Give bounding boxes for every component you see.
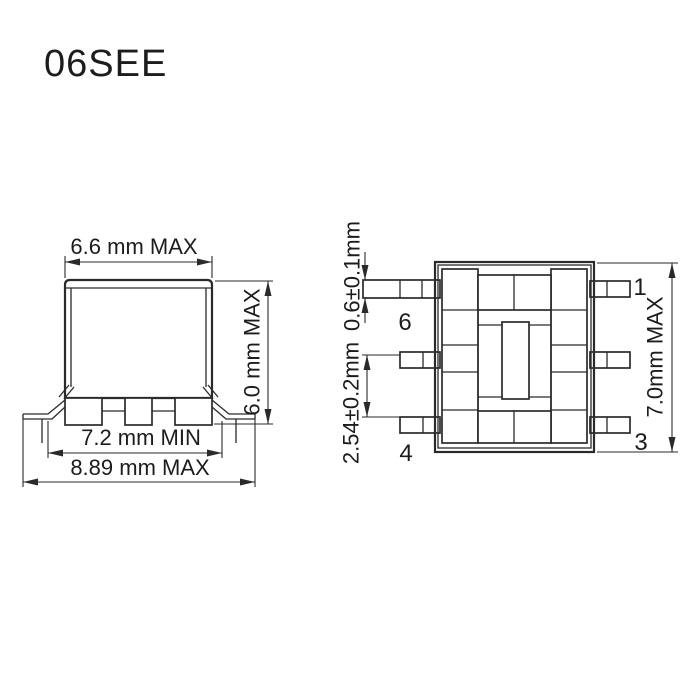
terminal-column-left <box>442 269 478 443</box>
technical-drawing: 06SEE <box>0 0 700 700</box>
pin-label-3: 3 <box>634 429 647 456</box>
contact-block-top <box>478 275 551 310</box>
drawing-sheet: 06SEE <box>0 0 700 700</box>
dim-label-lead-width: 0.6±0.1mm <box>340 221 365 331</box>
center-plunger <box>502 322 529 399</box>
foot-right <box>175 398 212 425</box>
dim-label-lead-span: 7.2 mm MIN <box>81 425 201 450</box>
top-view: 0.6±0.1mm 2.54±0.2mm 7.0mm MAX 6 4 1 3 <box>339 221 679 467</box>
pin-label-4: 4 <box>399 440 412 467</box>
dim-label-lead-pitch: 2.54±0.2mm <box>339 342 364 464</box>
lead-pin3 <box>590 417 630 433</box>
lead-pin6 <box>363 280 440 298</box>
lead-pin1 <box>590 281 630 297</box>
foot-center <box>125 398 152 425</box>
dim-body-width: 6.6 mm MAX <box>65 234 212 278</box>
package-case-outline <box>65 280 212 398</box>
drawing-title: 06SEE <box>44 43 167 85</box>
gullwing-lead-left <box>23 400 65 443</box>
dim-label-overall-width: 8.89 mm MAX <box>70 455 210 480</box>
terminal-column-right <box>551 269 587 443</box>
side-view: 6.6 mm MAX 6.0 mm MAX 7.2 mm MIN <box>23 234 273 487</box>
dim-lead-span: 7.2 mm MIN <box>48 421 222 458</box>
lead-pin2 <box>590 352 630 368</box>
contact-block-bottom <box>478 411 551 443</box>
dim-lead-width: 0.6±0.1mm <box>340 221 369 331</box>
dim-body-height: 6.0 mm MAX <box>214 281 273 424</box>
dim-label-body-length: 7.0mm MAX <box>643 296 668 417</box>
dim-label-body-width: 6.6 mm MAX <box>70 234 197 259</box>
dim-label-body-height: 6.0 mm MAX <box>240 288 265 415</box>
pin-label-6: 6 <box>398 309 411 336</box>
dim-lead-pitch: 2.54±0.2mm <box>339 342 401 464</box>
pin-label-1: 1 <box>633 274 646 301</box>
foot-left <box>65 398 102 425</box>
